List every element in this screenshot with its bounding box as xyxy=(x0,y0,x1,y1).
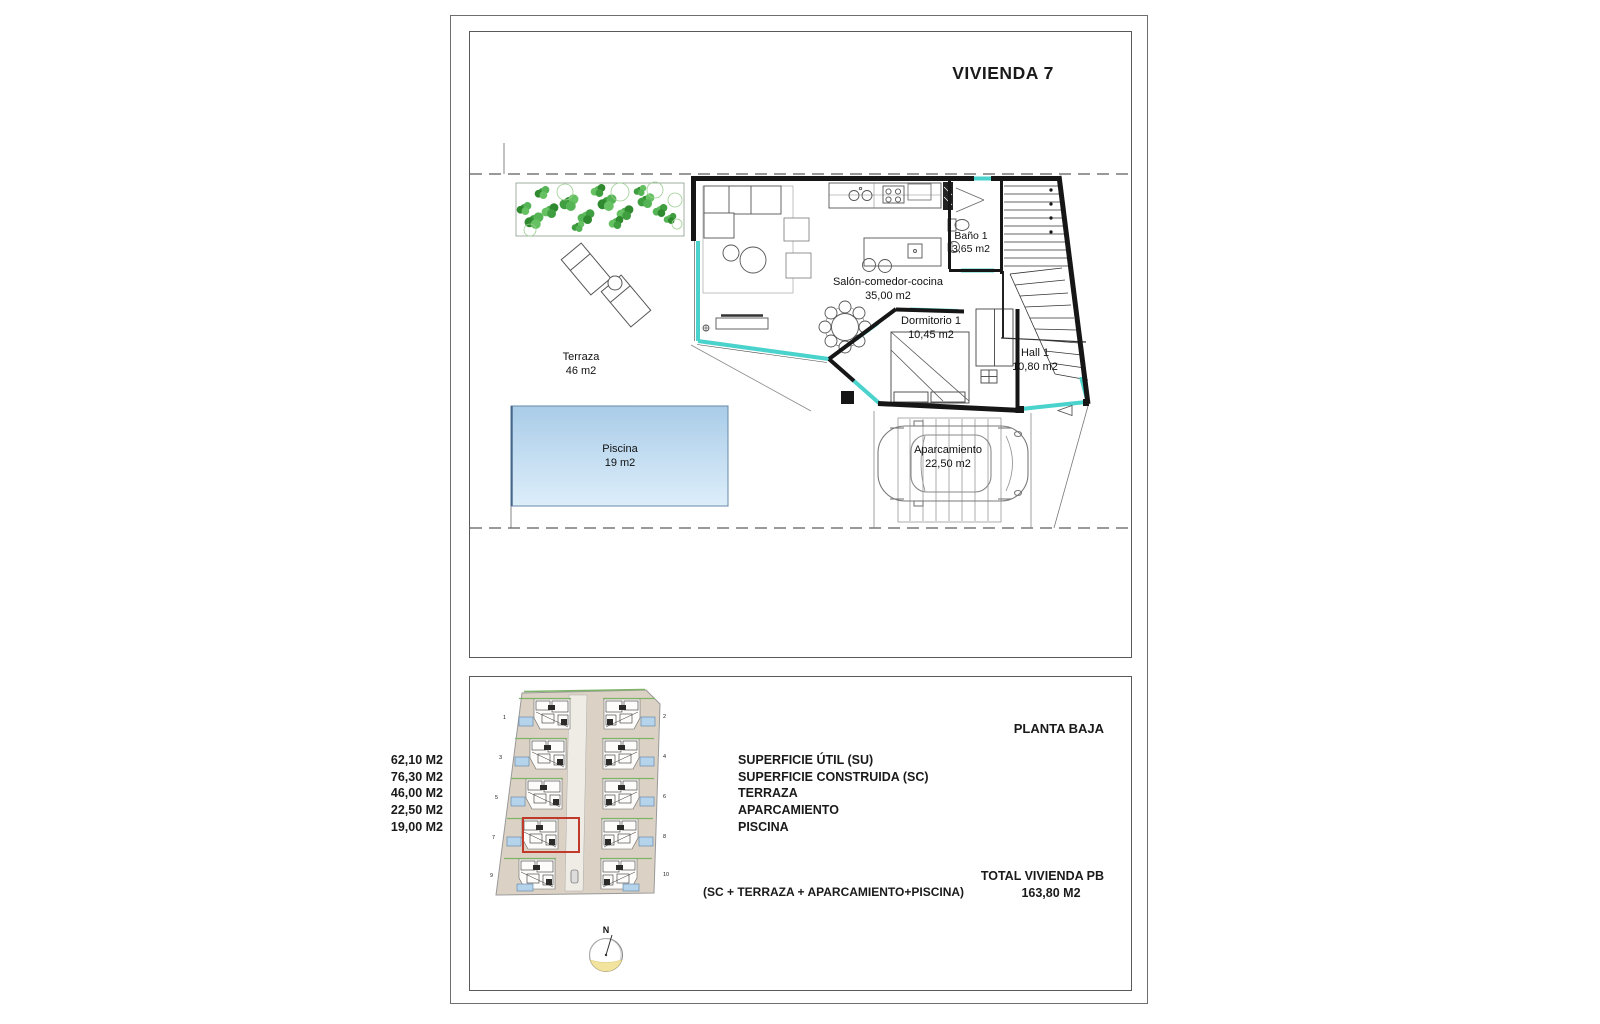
unit-marker: 4 xyxy=(663,754,666,760)
summary-panel: 1 2 3 4 5 6 7 8 9 10 N PLANTA BAJA SUPER… xyxy=(469,676,1132,991)
unit-marker: 7 xyxy=(492,835,495,841)
unit-marker: 1 xyxy=(503,715,506,721)
compass-n-label: N xyxy=(603,925,610,935)
room-label-terraza: Terraza46 m2 xyxy=(563,350,600,378)
north-compass: N xyxy=(590,925,623,972)
page: VIVIENDA 7 Terraza46 m2 Piscina19 m2 Sal… xyxy=(0,0,1600,1024)
room-label-bano: Baño 13,65 m2 xyxy=(952,230,990,256)
unit-marker: 8 xyxy=(663,834,666,840)
unit-marker: 9 xyxy=(490,873,493,879)
table-header: PLANTA BAJA xyxy=(1014,721,1104,736)
living-room-furniture xyxy=(703,186,811,331)
unit-marker: 5 xyxy=(495,795,498,801)
room-label-hall: Hall 110,80 m2 xyxy=(1012,346,1058,374)
unit-marker: 6 xyxy=(663,794,666,800)
floor-plan-drawing xyxy=(470,32,1131,657)
room-label-piscina: Piscina19 m2 xyxy=(602,442,637,470)
drawing-sheet: VIVIENDA 7 Terraza46 m2 Piscina19 m2 Sal… xyxy=(450,15,1148,1004)
room-label-dormitorio: Dormitorio 110,45 m2 xyxy=(901,314,961,342)
total-value: 163,80 M2 xyxy=(970,886,1132,900)
total-label: TOTAL VIVIENDA PB xyxy=(981,869,1104,883)
room-label-aparcamiento: Aparcamiento22,50 m2 xyxy=(914,443,982,471)
total-formula: (SC + TERRAZA + APARCAMIENTO+PISCINA) xyxy=(703,885,964,899)
plan-title: VIVIENDA 7 xyxy=(952,63,1054,84)
sun-loungers xyxy=(561,243,650,327)
unit-marker: 10 xyxy=(663,872,669,878)
garden-hedge xyxy=(516,182,684,236)
site-plan xyxy=(496,690,660,896)
unit-marker: 3 xyxy=(499,755,502,761)
unit-marker: 2 xyxy=(663,714,666,720)
kitchen-counter xyxy=(829,183,941,273)
floor-plan-panel: VIVIENDA 7 Terraza46 m2 Piscina19 m2 Sal… xyxy=(469,31,1132,658)
entrance-arrow-icon xyxy=(1058,406,1072,416)
room-label-salon: Salón-comedor-cocina35,00 m2 xyxy=(833,275,943,303)
